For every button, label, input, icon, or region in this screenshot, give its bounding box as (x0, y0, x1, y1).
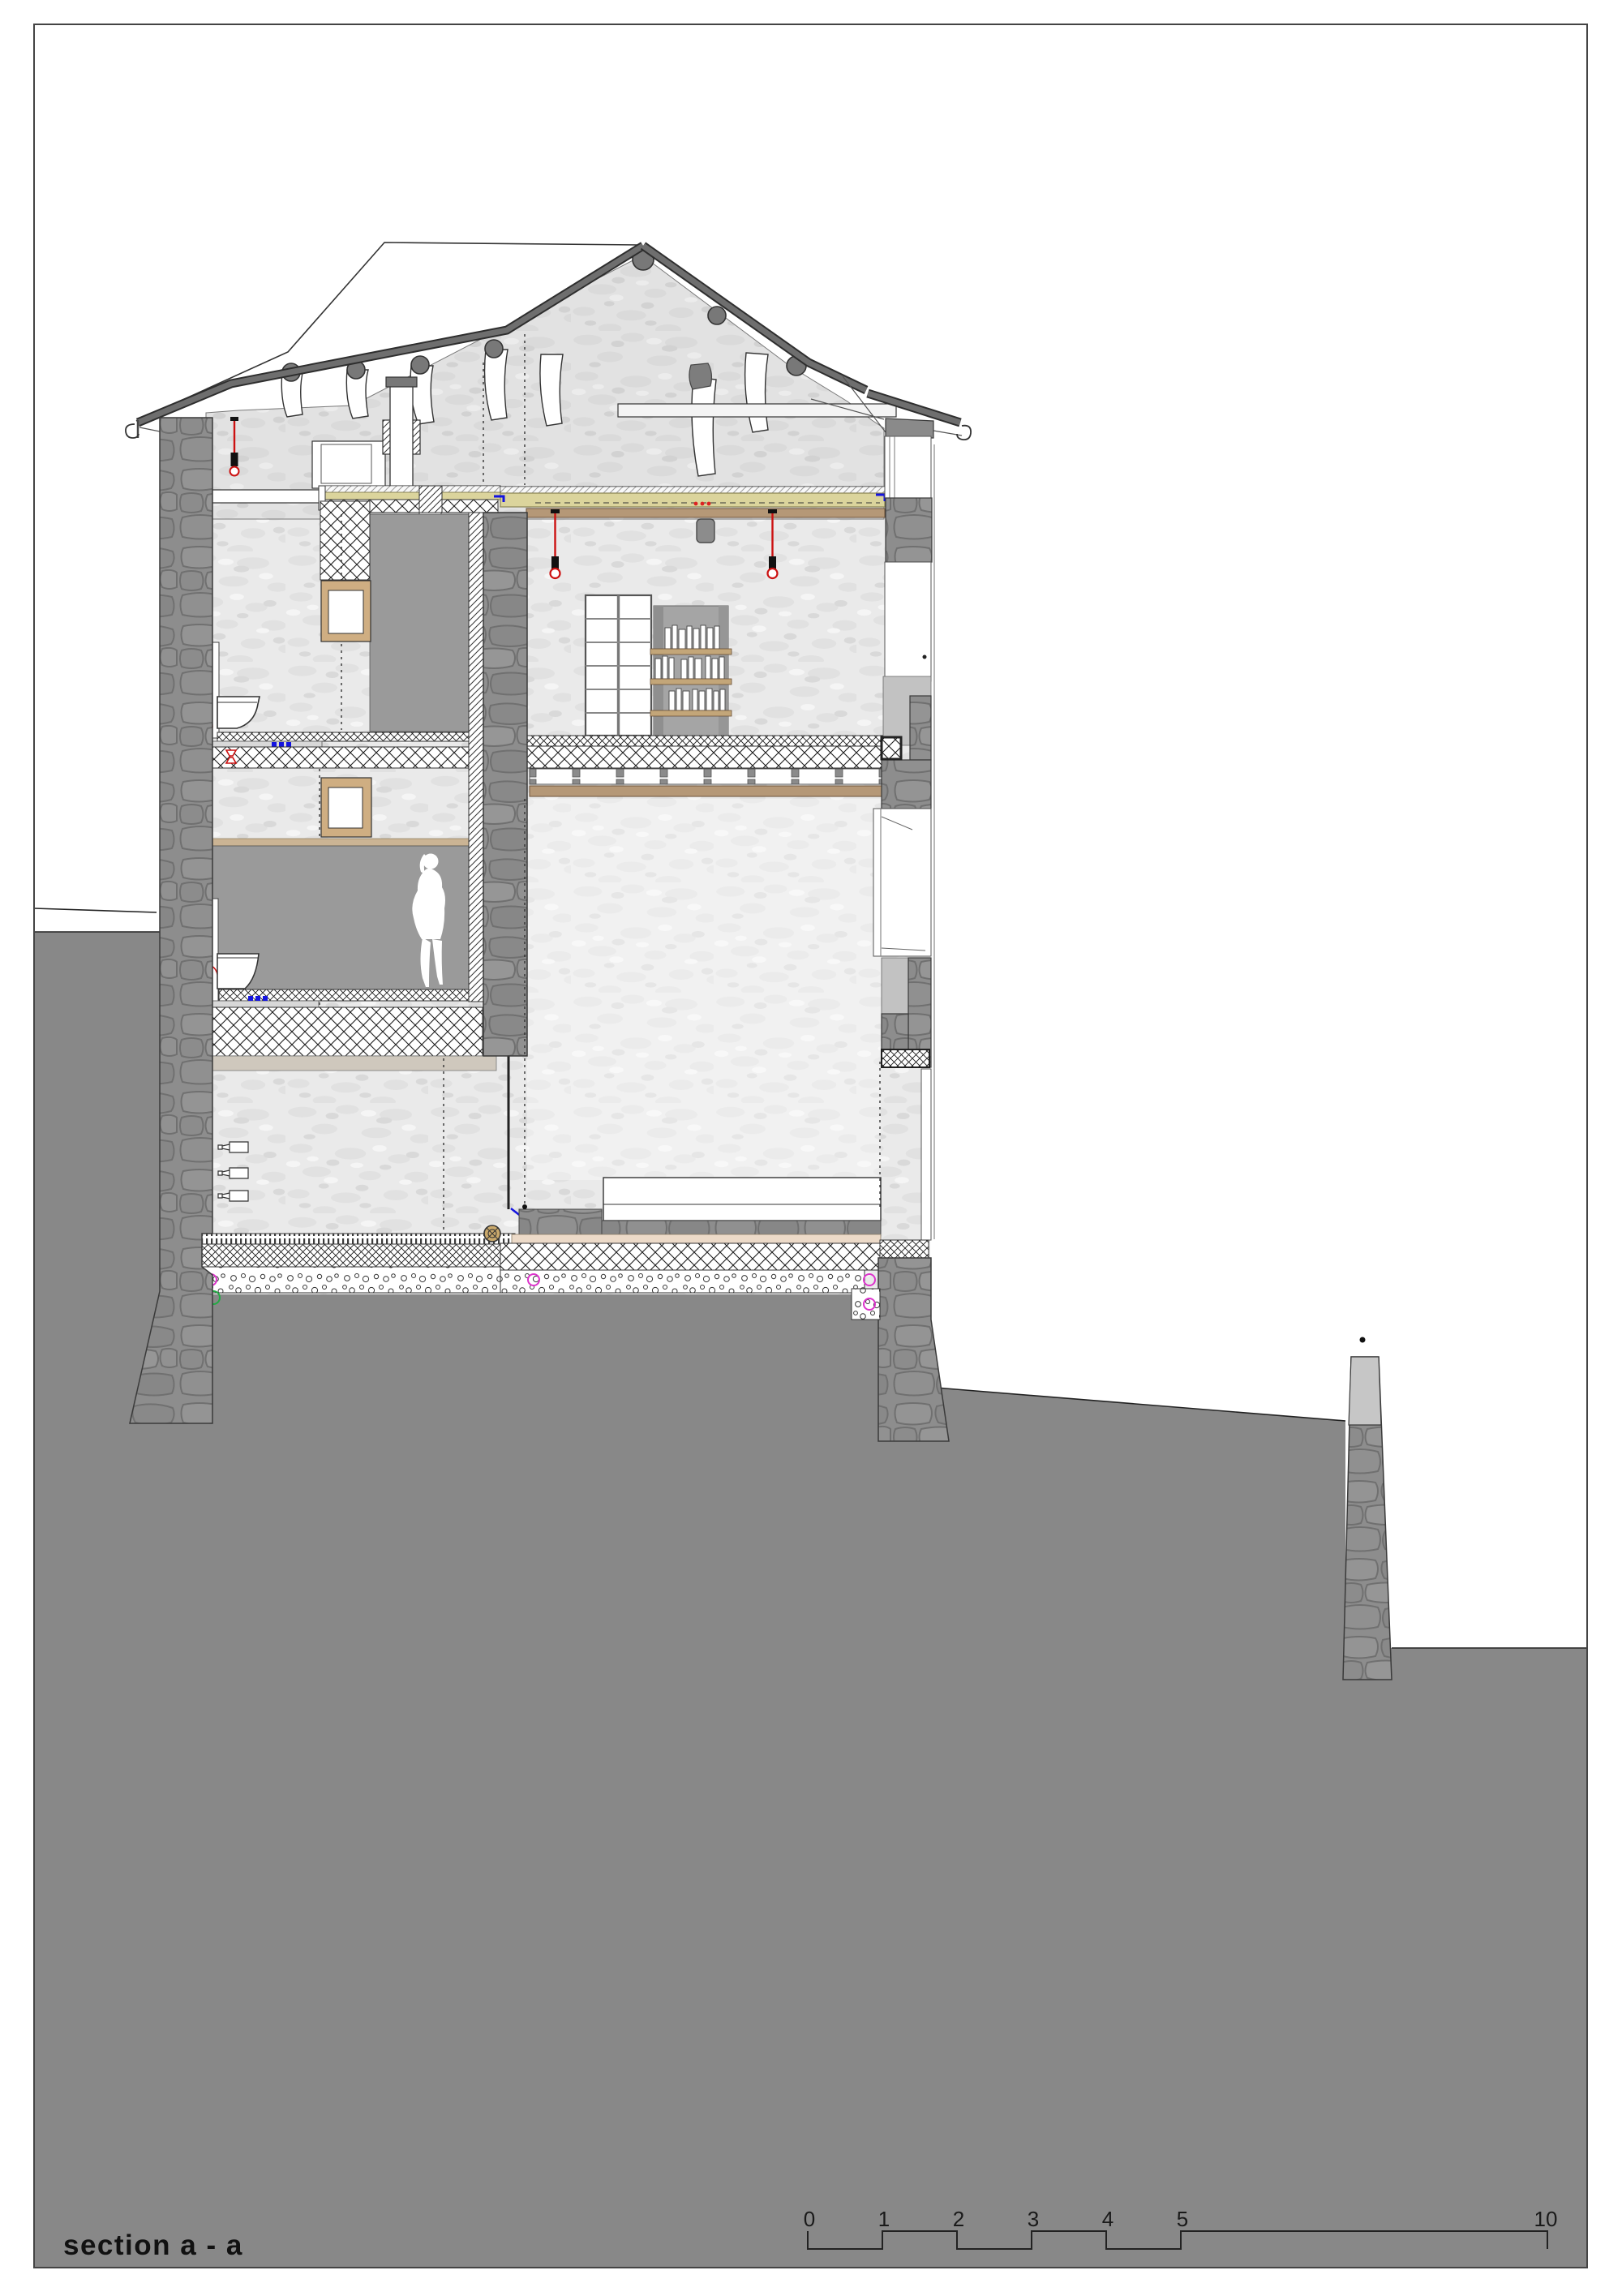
svg-text:3: 3 (1028, 2207, 1039, 2231)
svg-text:10: 10 (1534, 2207, 1558, 2231)
svg-text:1: 1 (878, 2207, 890, 2231)
svg-text:0: 0 (804, 2207, 815, 2231)
svg-text:section a - a: section a - a (63, 2229, 243, 2261)
svg-text:4: 4 (1102, 2207, 1114, 2231)
svg-text:2: 2 (953, 2207, 964, 2231)
svg-text:5: 5 (1177, 2207, 1188, 2231)
